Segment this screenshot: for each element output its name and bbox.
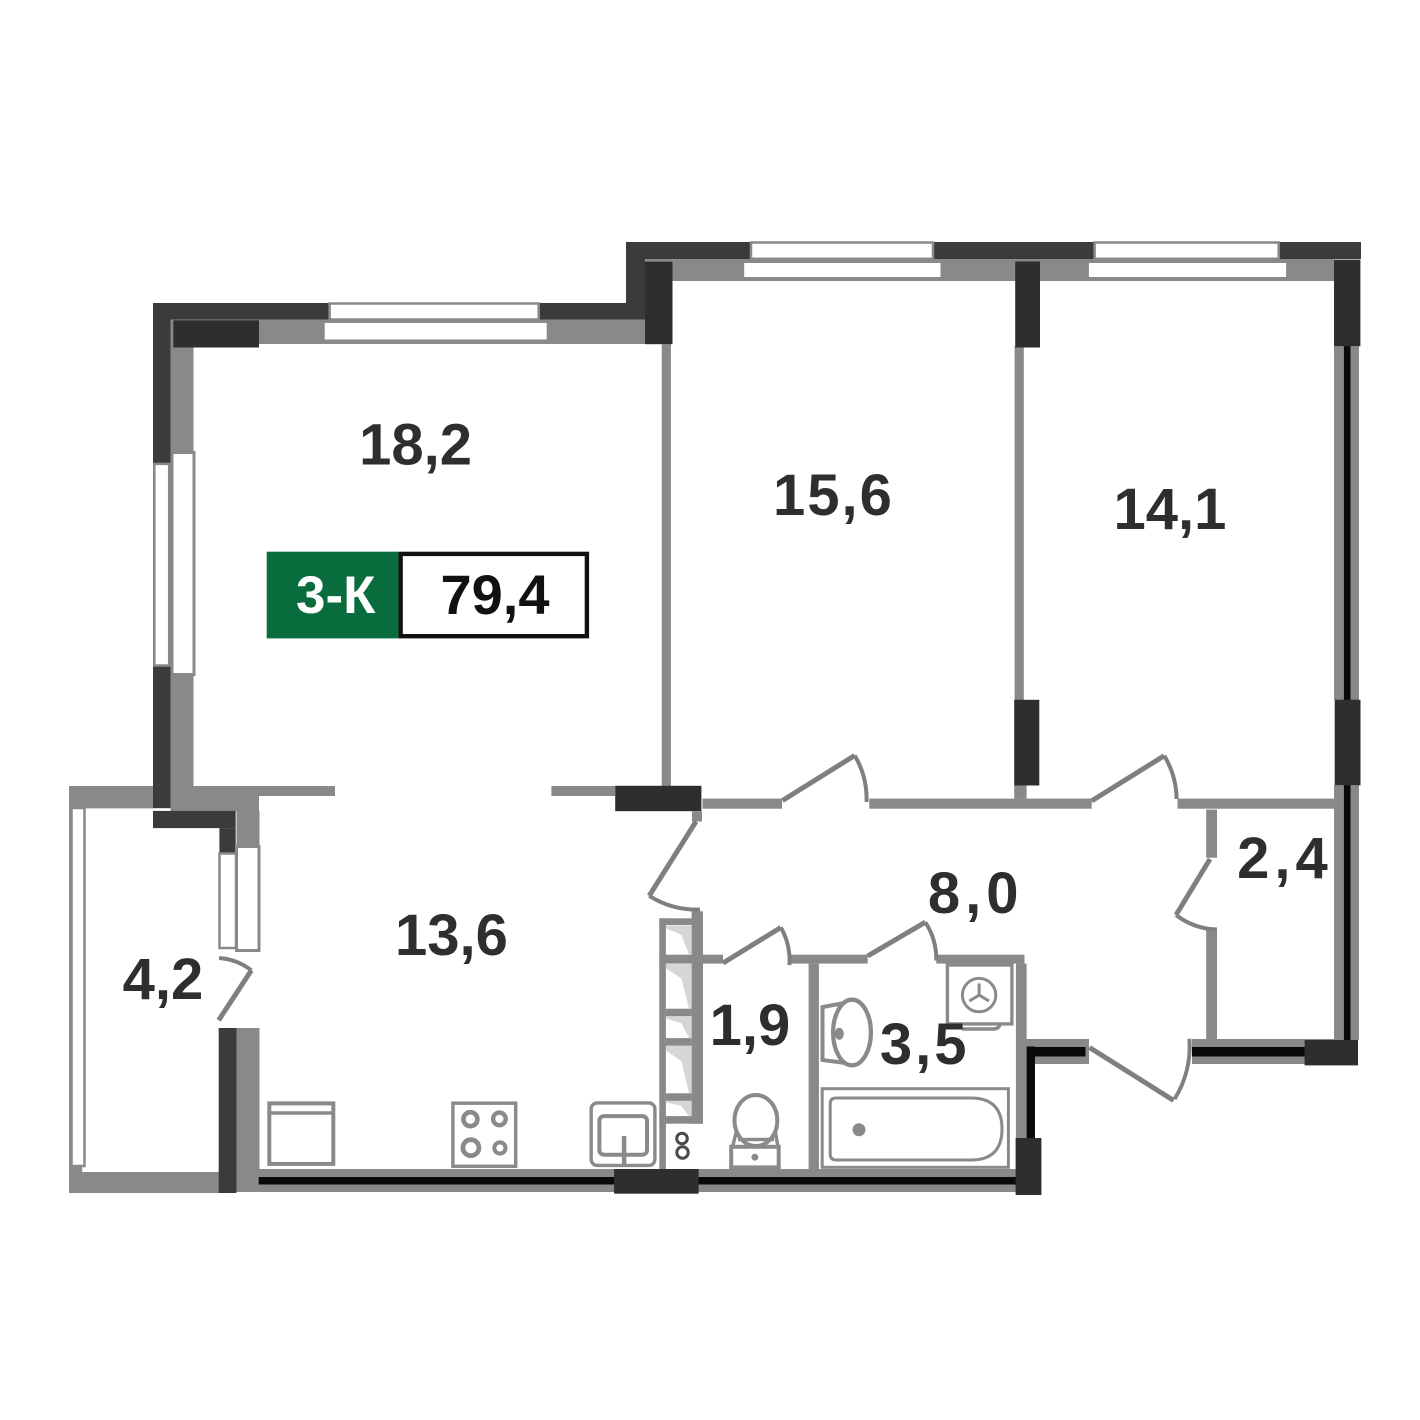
svg-text:1,9: 1,9 [710,993,791,1058]
svg-text:3,5: 3,5 [880,1012,970,1077]
svg-text:8,0: 8,0 [928,861,1024,926]
svg-text:18,2: 18,2 [359,413,472,478]
svg-text:3-К: 3-К [296,566,376,625]
svg-text:79,4: 79,4 [441,563,550,626]
svg-text:15,6: 15,6 [773,463,894,528]
svg-text:13,6: 13,6 [395,903,508,968]
svg-text:14,1: 14,1 [1114,477,1227,542]
svg-text:4,2: 4,2 [123,947,204,1012]
svg-text:2,4: 2,4 [1237,826,1333,891]
